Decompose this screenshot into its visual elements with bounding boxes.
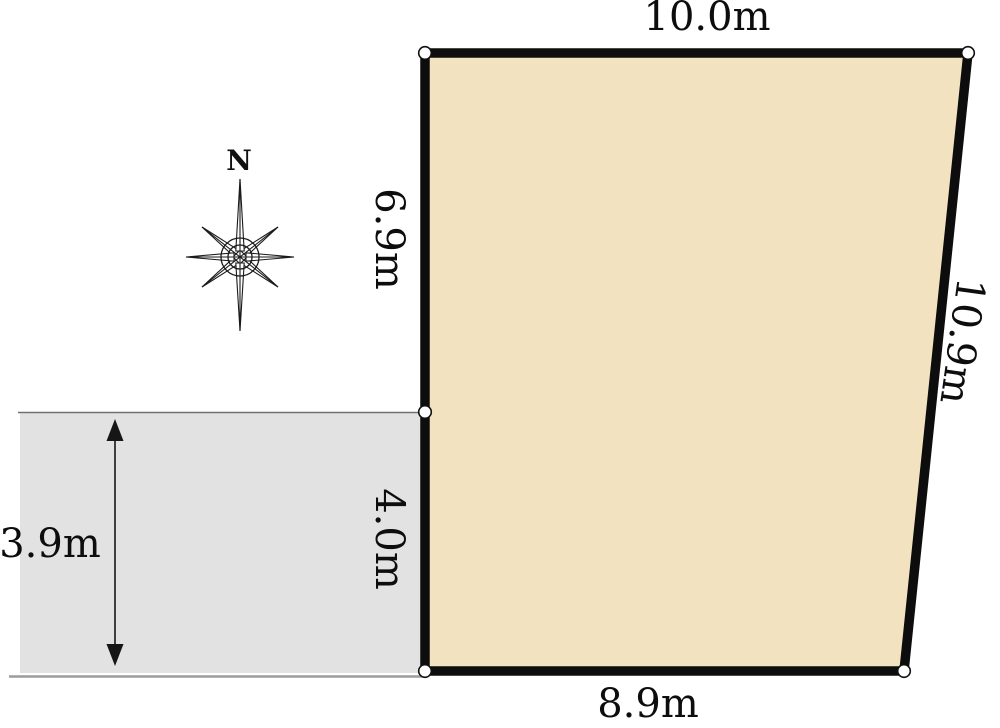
dimension-bottom: 8.9m <box>597 684 699 724</box>
vertex-marker-top-right <box>962 47 975 60</box>
site-plan-drawing <box>0 0 1000 728</box>
vertex-marker-bottom-left <box>419 665 432 678</box>
lot-polygon <box>425 53 968 671</box>
compass-rose-icon <box>186 179 294 331</box>
vertex-marker-bottom-right <box>898 665 911 678</box>
dimension-top: 10.0m <box>644 0 771 37</box>
dimension-left-lower: 4.0m <box>369 488 409 590</box>
dimension-left-upper: 6.9m <box>369 188 409 290</box>
vertex-marker-top-left <box>419 47 432 60</box>
dimension-road-width: 3.9m <box>0 524 101 564</box>
vertex-marker-mid-left <box>419 406 432 419</box>
site-plan: N 10.0m 6.9m 4.0m 10.9m 8.9m 3.9m <box>0 0 1000 728</box>
compass-north-label: N <box>226 147 252 175</box>
